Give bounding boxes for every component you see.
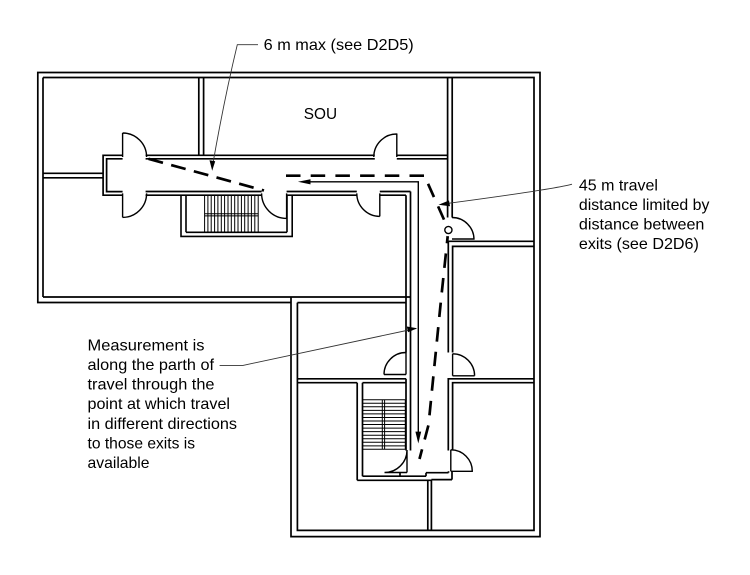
- svg-text:to those exits is: to those exits is: [88, 435, 196, 452]
- svg-text:distance limited by: distance limited by: [579, 197, 710, 214]
- svg-text:45 m travel: 45 m travel: [579, 177, 658, 194]
- svg-text:point at which travel: point at which travel: [88, 396, 231, 413]
- svg-text:travel through the: travel through the: [88, 377, 215, 394]
- svg-text:in different directions: in different directions: [88, 416, 238, 433]
- svg-text:distance between: distance between: [579, 217, 705, 234]
- svg-text:6 m max (see D2D5): 6 m max (see D2D5): [264, 37, 414, 54]
- svg-text:SOU: SOU: [304, 106, 337, 123]
- svg-text:available: available: [88, 455, 150, 472]
- svg-text:along the parth of: along the parth of: [88, 357, 215, 374]
- svg-text:Measurement is: Measurement is: [88, 337, 205, 354]
- svg-text:exits (see D2D6): exits (see D2D6): [579, 236, 699, 253]
